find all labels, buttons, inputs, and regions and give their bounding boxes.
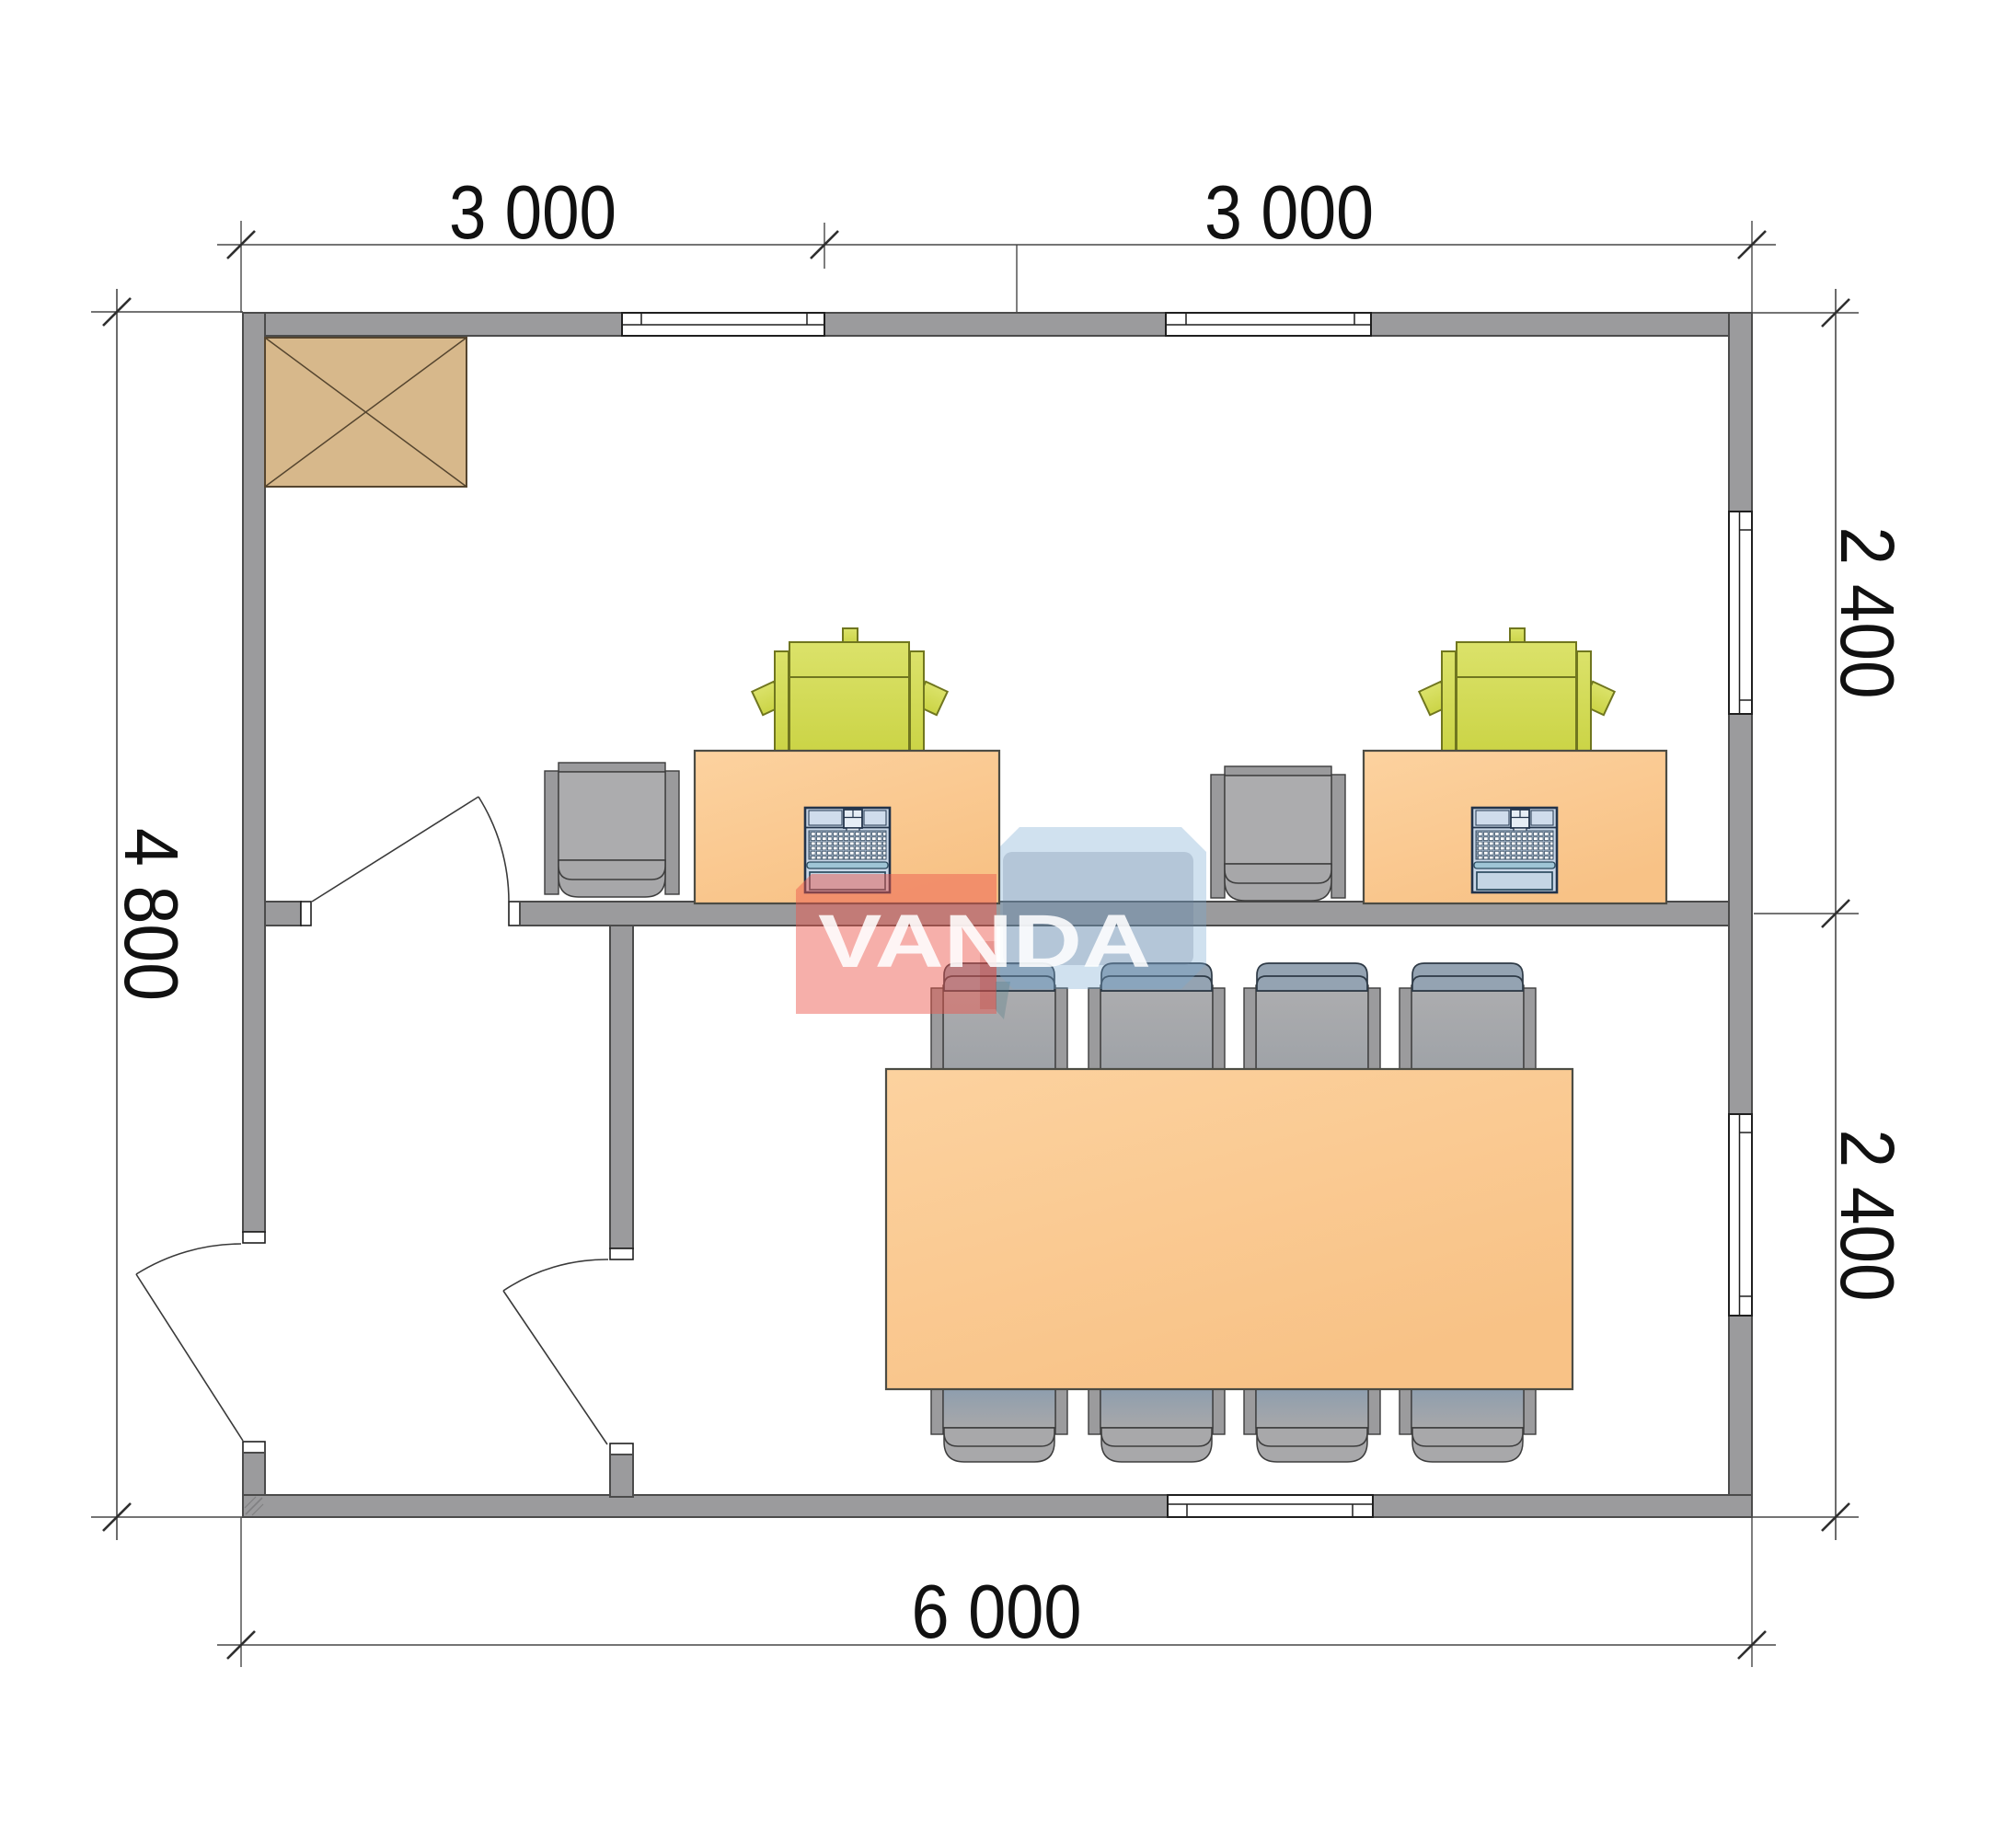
svg-text:6 000: 6 000 — [912, 1569, 1082, 1654]
svg-text:4 800: 4 800 — [109, 828, 194, 1001]
svg-text:3 000: 3 000 — [1204, 169, 1374, 255]
svg-text:2 400: 2 400 — [1825, 527, 1910, 699]
svg-text:VANDA: VANDA — [818, 900, 1151, 983]
svg-text:3 000: 3 000 — [449, 169, 616, 255]
svg-text:2 400: 2 400 — [1825, 1130, 1910, 1302]
